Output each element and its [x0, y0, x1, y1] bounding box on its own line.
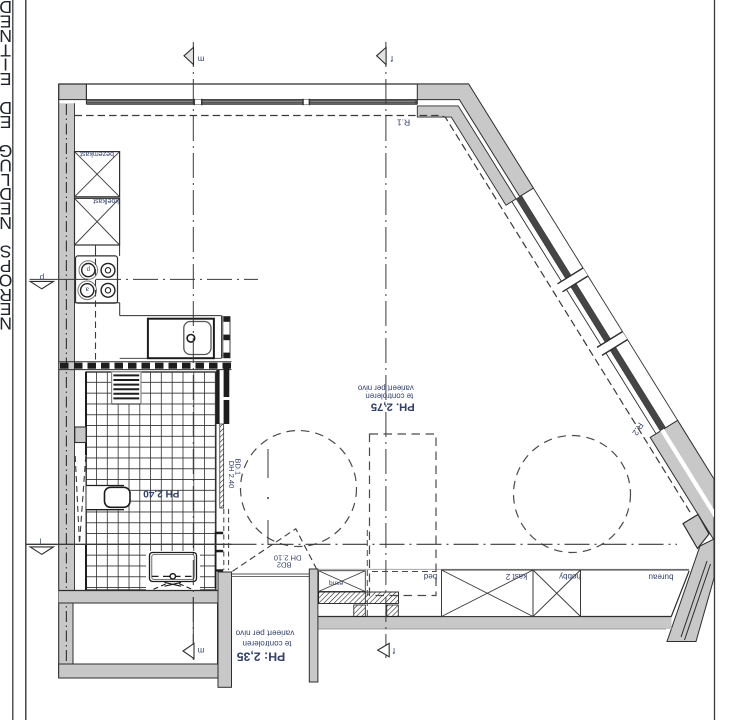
svg-text:bed: bed: [424, 572, 437, 581]
svg-text:PH 2.40: PH 2.40: [143, 487, 180, 498]
svg-text:DH 2.40: DH 2.40: [227, 461, 236, 489]
svg-text:varieert per nivo: varieert per nivo: [235, 629, 294, 638]
svg-text:bureau: bureau: [649, 573, 674, 582]
svg-text:R.1: R.1: [397, 118, 411, 128]
svg-text:PH: 2,35: PH: 2,35: [237, 649, 286, 663]
svg-text:PH. 2,75: PH. 2,75: [371, 400, 415, 412]
svg-text:kast 2: kast 2: [505, 572, 527, 581]
svg-text:p: p: [39, 273, 44, 282]
svg-text:hobby: hobby: [559, 572, 581, 581]
svg-text:N: N: [0, 213, 12, 233]
svg-text:te controleren: te controleren: [365, 392, 413, 401]
svg-text:koelkast: koelkast: [93, 197, 119, 204]
svg-text:l: l: [39, 537, 41, 546]
svg-text:BD2: BD2: [277, 561, 292, 570]
svg-text:te controleren: te controleren: [243, 639, 292, 648]
svg-text:E: E: [0, 69, 11, 89]
svg-text:bezemkast: bezemkast: [80, 150, 114, 157]
svg-text:E: E: [0, 112, 11, 132]
svg-text:N: N: [0, 314, 12, 334]
svg-text:exnq: exnq: [329, 580, 343, 587]
svg-text:m: m: [197, 646, 204, 655]
svg-text:m: m: [197, 55, 204, 64]
